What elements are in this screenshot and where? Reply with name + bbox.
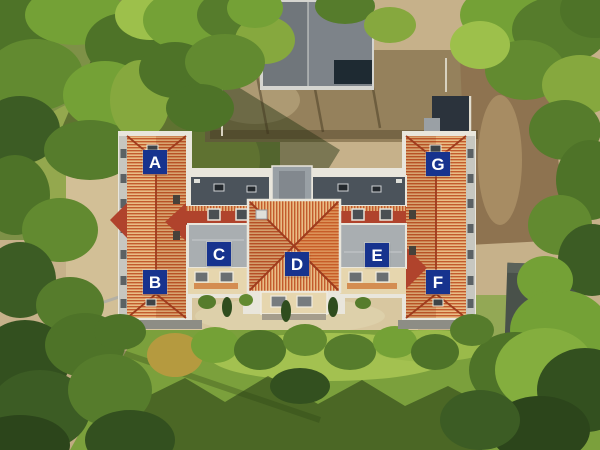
- unit-label-c[interactable]: C: [207, 242, 231, 266]
- unit-label-e[interactable]: E: [365, 243, 389, 267]
- unit-labels-overlay: A B C D E F G: [0, 0, 600, 450]
- aerial-photo: A B C D E F G: [0, 0, 600, 450]
- unit-label-f[interactable]: F: [426, 270, 450, 294]
- unit-label-a[interactable]: A: [143, 150, 167, 174]
- unit-label-g[interactable]: G: [426, 152, 450, 176]
- unit-label-d[interactable]: D: [285, 252, 309, 276]
- unit-label-b[interactable]: B: [143, 270, 167, 294]
